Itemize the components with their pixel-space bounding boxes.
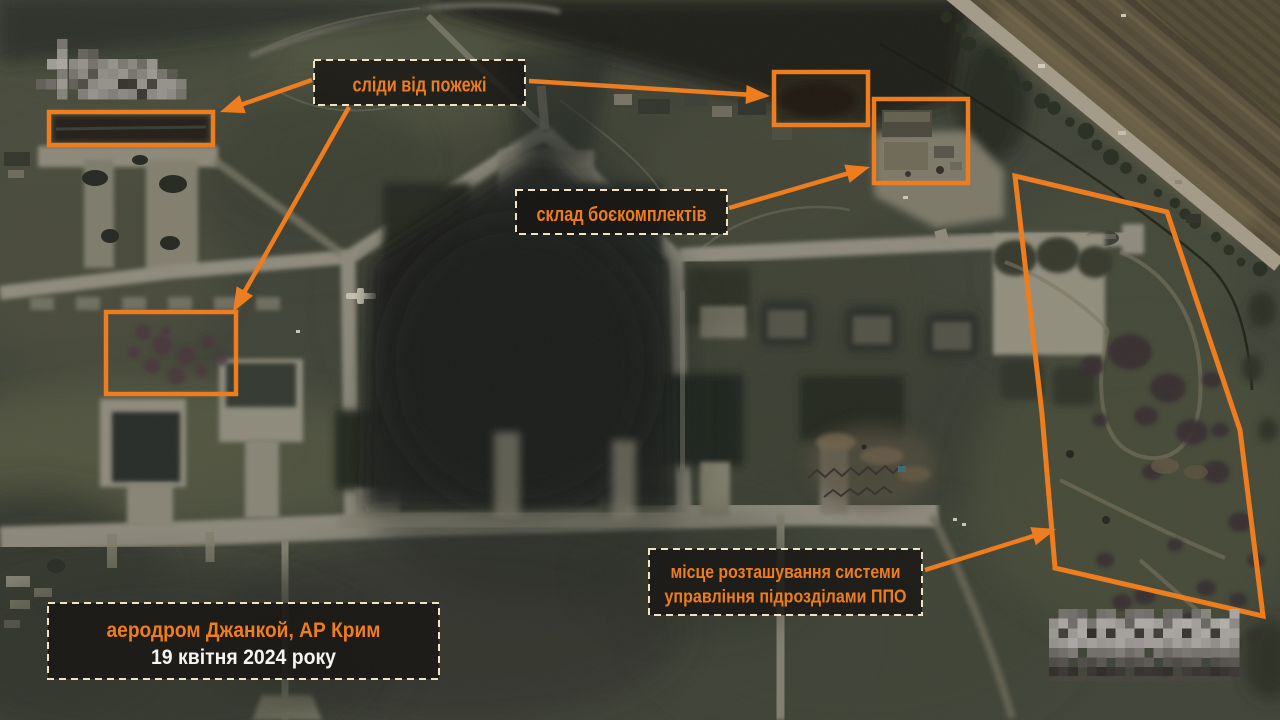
svg-text:аеродром Джанкой, АР Крим: аеродром Джанкой, АР Крим [107,619,381,642]
svg-text:19 квітня 2024 року: 19 квітня 2024 року [151,646,336,669]
svg-text:склад боєкомплектів: склад боєкомплектів [537,204,707,226]
svg-text:управління підрозділами ППО: управління підрозділами ППО [665,586,907,607]
svg-text:сліди від пожежі: сліди від пожежі [353,75,487,97]
svg-text:місце розташування системи: місце розташування системи [671,561,901,582]
